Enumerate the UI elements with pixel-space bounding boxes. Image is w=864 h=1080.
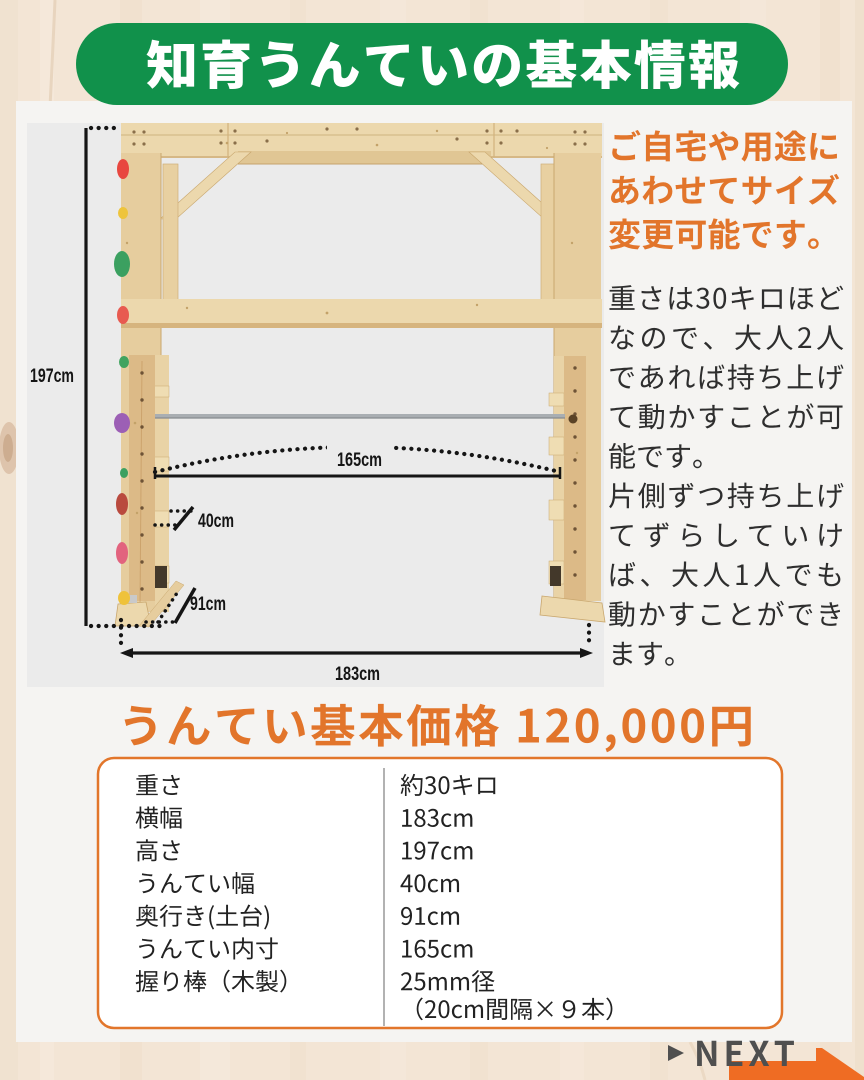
svg-text:197cm: 197cm [30, 365, 74, 387]
svg-text:91cm: 91cm [190, 593, 226, 615]
svg-text:183cm: 183cm [335, 663, 380, 685]
svg-text:40cm: 40cm [198, 510, 234, 532]
svg-text:165cm: 165cm [337, 449, 382, 471]
